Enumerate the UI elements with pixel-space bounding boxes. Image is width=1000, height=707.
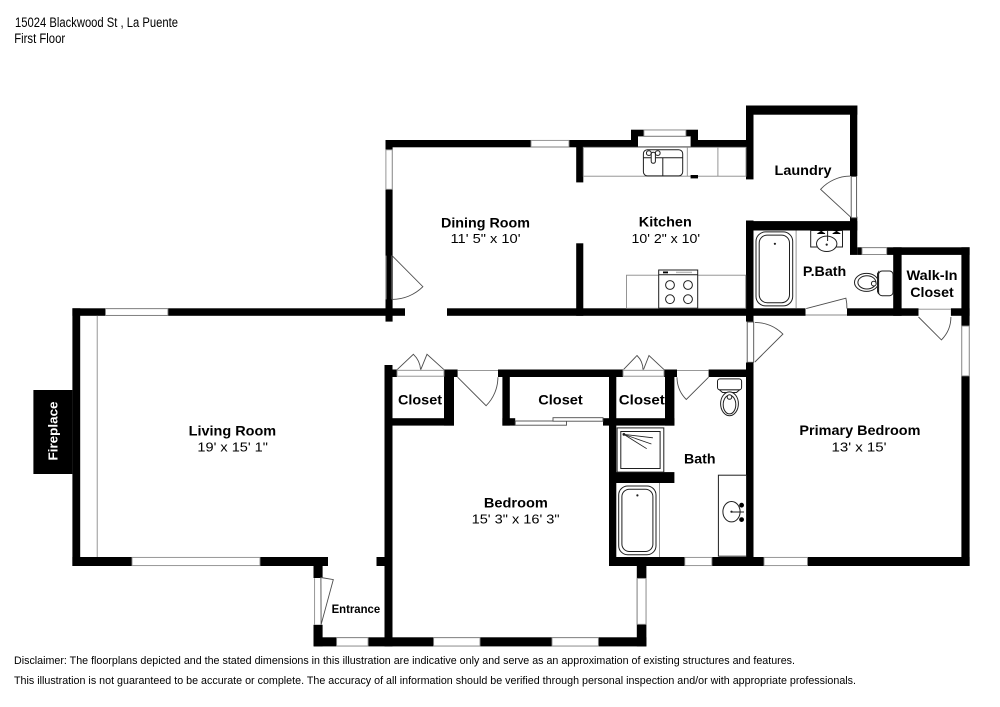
svg-text:Closet: Closet (910, 284, 954, 300)
svg-text:Entrance: Entrance (332, 604, 381, 616)
svg-text:P.Bath: P.Bath (803, 263, 846, 279)
svg-text:Primary Bedroom: Primary Bedroom (799, 422, 920, 438)
svg-text:Bath: Bath (684, 451, 716, 467)
svg-text:Closet: Closet (619, 392, 665, 408)
svg-text:This illustration is not guara: This illustration is not guaranteed to b… (14, 675, 856, 687)
svg-text:19' x 15' 1": 19' x 15' 1" (197, 439, 268, 454)
svg-text:10' 2" x 10': 10' 2" x 10' (632, 231, 701, 246)
svg-text:Closet: Closet (538, 392, 583, 408)
svg-text:Living Room: Living Room (189, 423, 277, 439)
svg-text:Walk-In: Walk-In (907, 267, 958, 283)
svg-text:Dining Room: Dining Room (441, 214, 530, 230)
svg-text:Laundry: Laundry (775, 162, 832, 178)
svg-text:15' 3" x 16' 3": 15' 3" x 16' 3" (472, 512, 560, 527)
svg-text:15024 Blackwood St , La Puente: 15024 Blackwood St , La Puente (15, 15, 178, 30)
svg-text:Bedroom: Bedroom (484, 494, 548, 510)
svg-text:First Floor: First Floor (14, 31, 65, 46)
svg-text:Disclaimer: The floorplans dep: Disclaimer: The floorplans depicted and … (14, 655, 795, 667)
svg-text:Fireplace: Fireplace (45, 402, 60, 461)
svg-text:Closet: Closet (398, 392, 442, 408)
svg-text:Kitchen: Kitchen (639, 214, 692, 230)
svg-text:13' x 15': 13' x 15' (832, 440, 887, 455)
svg-text:11' 5" x 10': 11' 5" x 10' (451, 231, 521, 246)
